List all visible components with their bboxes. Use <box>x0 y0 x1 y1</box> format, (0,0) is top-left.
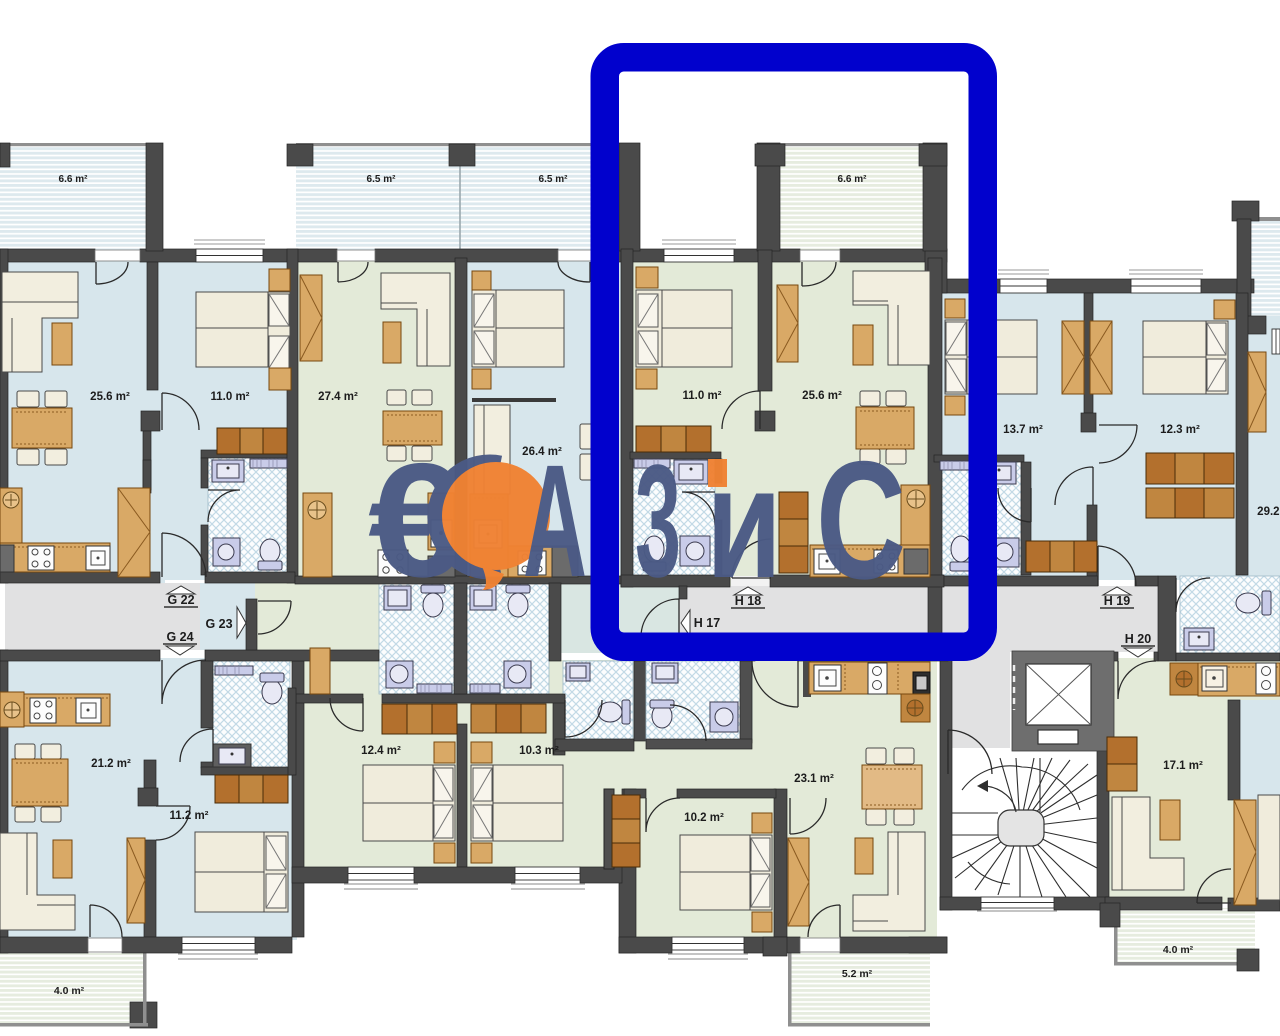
svg-text:G 24: G 24 <box>166 630 193 644</box>
svg-text:и: и <box>706 435 782 611</box>
svg-text:4.0 m²: 4.0 m² <box>1163 944 1194 956</box>
svg-text:11.2 m²: 11.2 m² <box>170 810 209 822</box>
svg-text:12.4 m²: 12.4 m² <box>361 745 401 757</box>
svg-text:13.7 m²: 13.7 m² <box>1003 424 1043 436</box>
svg-text:25.6 m²: 25.6 m² <box>90 391 130 403</box>
svg-text:12.3 m²: 12.3 m² <box>1160 424 1200 436</box>
svg-text:25.6 m²: 25.6 m² <box>802 390 842 402</box>
svg-text:H 17: H 17 <box>694 616 720 630</box>
svg-text:A: A <box>523 431 587 610</box>
svg-text:6.5 m²: 6.5 m² <box>539 174 569 185</box>
svg-text:17.1 m²: 17.1 m² <box>1163 760 1203 772</box>
svg-text:6.6 m²: 6.6 m² <box>59 174 89 185</box>
svg-text:6.5 m²: 6.5 m² <box>367 174 397 185</box>
svg-text:29.2 m²: 29.2 m² <box>1257 506 1280 518</box>
svg-text:H 20: H 20 <box>1125 632 1151 646</box>
svg-text:10.3 m²: 10.3 m² <box>519 745 559 757</box>
svg-text:H 19: H 19 <box>1104 594 1130 608</box>
svg-text:11.0 m²: 11.0 m² <box>683 390 722 402</box>
svg-text:27.4 m²: 27.4 m² <box>318 391 358 403</box>
svg-text:21.2 m²: 21.2 m² <box>91 758 131 770</box>
svg-text:4.0 m²: 4.0 m² <box>54 985 85 997</box>
svg-text:6.6 m²: 6.6 m² <box>838 174 868 185</box>
svg-text:11.0 m²: 11.0 m² <box>211 391 250 403</box>
svg-text:5.2 m²: 5.2 m² <box>842 968 873 980</box>
svg-text:G 22: G 22 <box>167 593 194 607</box>
svg-text:3: 3 <box>635 431 681 610</box>
svg-text:C: C <box>816 426 906 614</box>
svg-text:10.2 m²: 10.2 m² <box>684 812 724 824</box>
svg-text:G 23: G 23 <box>205 617 232 631</box>
svg-text:23.1 m²: 23.1 m² <box>794 773 834 785</box>
